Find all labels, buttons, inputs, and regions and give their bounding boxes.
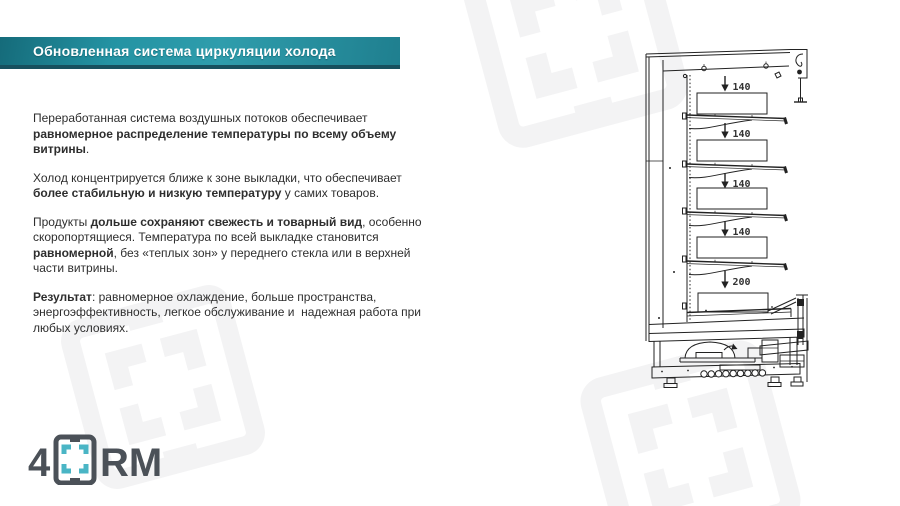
airflow-arrow: 140 <box>721 123 750 140</box>
fridge-cross-section-diagram: 140 140 140 <box>640 45 815 392</box>
gap-label: 140 <box>733 82 751 93</box>
header-banner: Обновленная система циркуляции холода <box>0 37 400 69</box>
perforated-panel-drawing <box>683 74 691 322</box>
logo-suffix: RM <box>100 441 162 485</box>
airflow-arrow: 200 <box>721 271 750 289</box>
airflow-arrow: 140 <box>721 76 750 93</box>
paragraph-result: Результат: равномерное охлаждение, больш… <box>33 290 423 337</box>
product-box <box>697 93 767 114</box>
gap-label: 140 <box>733 129 751 140</box>
product-box <box>697 140 767 161</box>
logo-frame-icon <box>56 435 94 485</box>
paragraph-cold-zone: Холод концентрируется ближе к зоне выкла… <box>33 171 423 202</box>
shelf-drawing <box>687 114 787 129</box>
gap-label: 200 <box>733 277 751 288</box>
product-box <box>697 237 767 258</box>
product-box <box>697 188 767 209</box>
body-text: Переработанная система воздушных потоков… <box>33 111 423 349</box>
slide-title: Обновленная система циркуляции холода <box>0 37 400 65</box>
shelf-drawing <box>687 211 787 226</box>
slide-canvas: Обновленная система циркуляции холода Пе… <box>0 0 900 506</box>
gap-label: 140 <box>733 227 751 238</box>
airflow-arrow: 140 <box>721 173 750 190</box>
airflow-arrow: 140 <box>721 221 750 238</box>
shelf-drawing <box>687 260 787 275</box>
paragraph-freshness: Продукты дольше сохраняют свежесть и тов… <box>33 215 423 277</box>
feet-drawing <box>664 377 803 388</box>
paragraph-airflow: Переработанная система воздушных потоков… <box>33 111 423 158</box>
logo-prefix: 4 <box>28 441 51 485</box>
back-wall-drawing <box>646 54 675 341</box>
shelf-drawing <box>687 163 787 178</box>
company-logo: 4 RM <box>28 433 178 485</box>
